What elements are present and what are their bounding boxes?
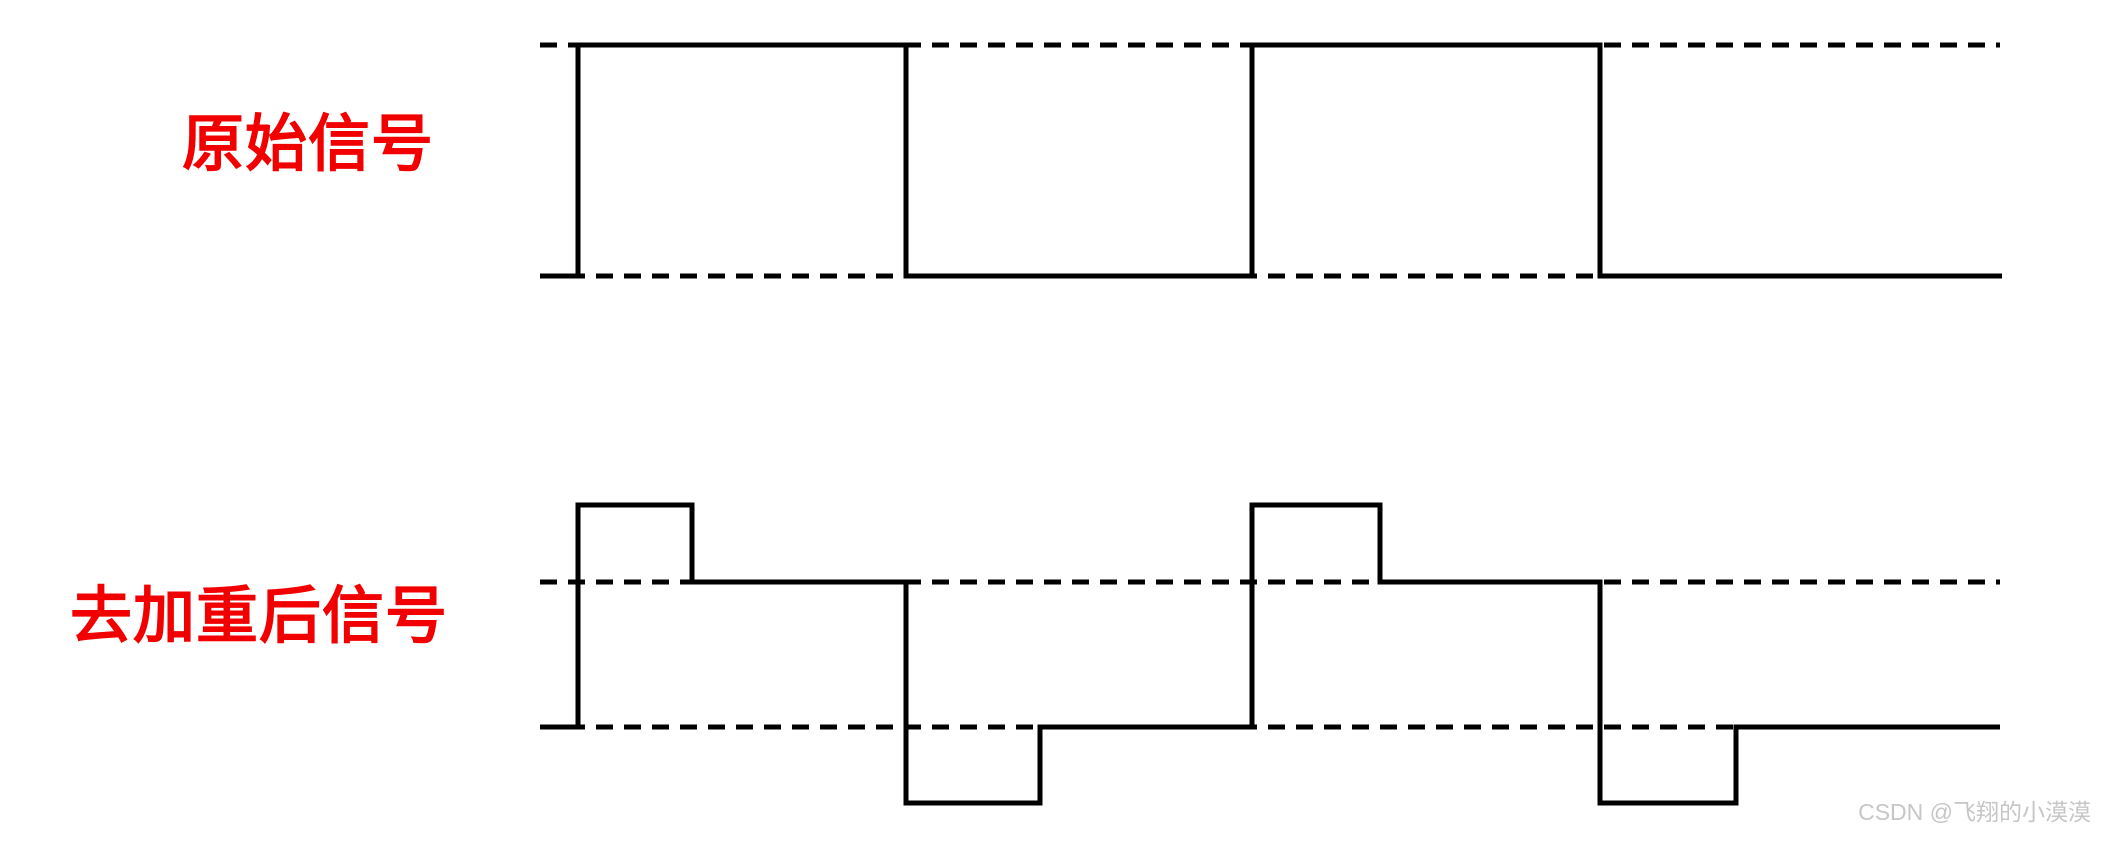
original-signal-trace [540,45,2002,276]
waveform-diagram [0,0,2113,841]
deemphasized-signal-trace [540,505,2000,803]
figure-canvas: 原始信号 去加重后信号 CSDN @飞翔的小漠漠 [0,0,2113,841]
csdn-watermark: CSDN @飞翔的小漠漠 [1858,799,2091,827]
